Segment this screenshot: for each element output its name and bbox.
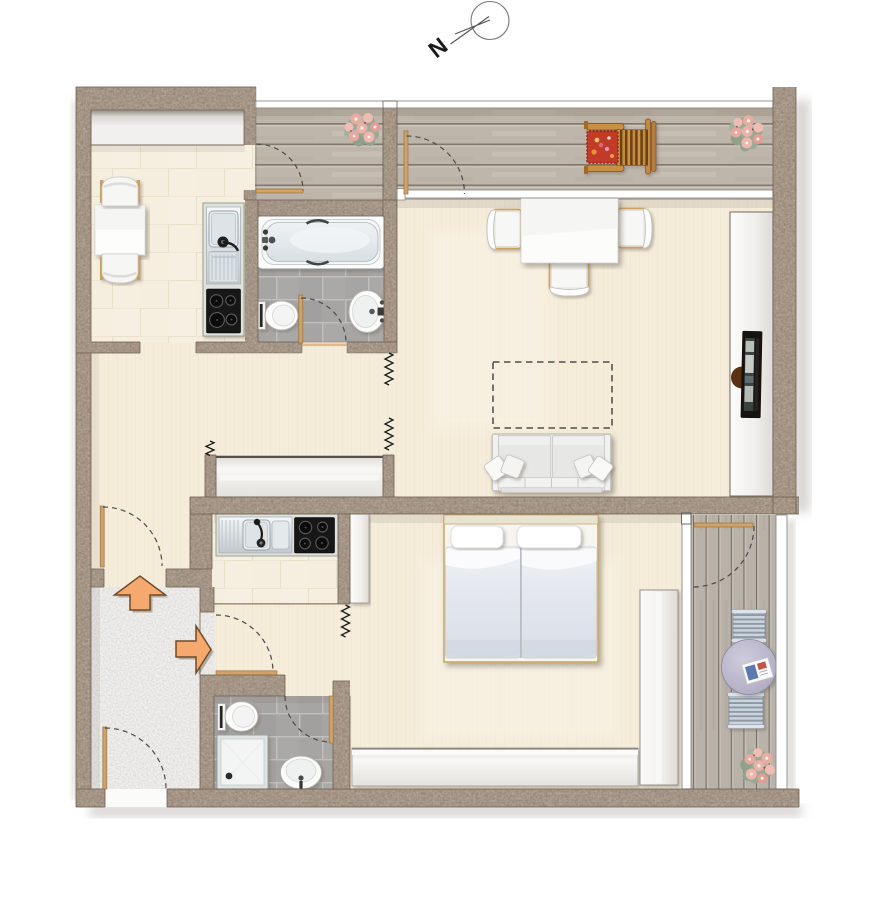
svg-text:N: N (423, 32, 452, 63)
